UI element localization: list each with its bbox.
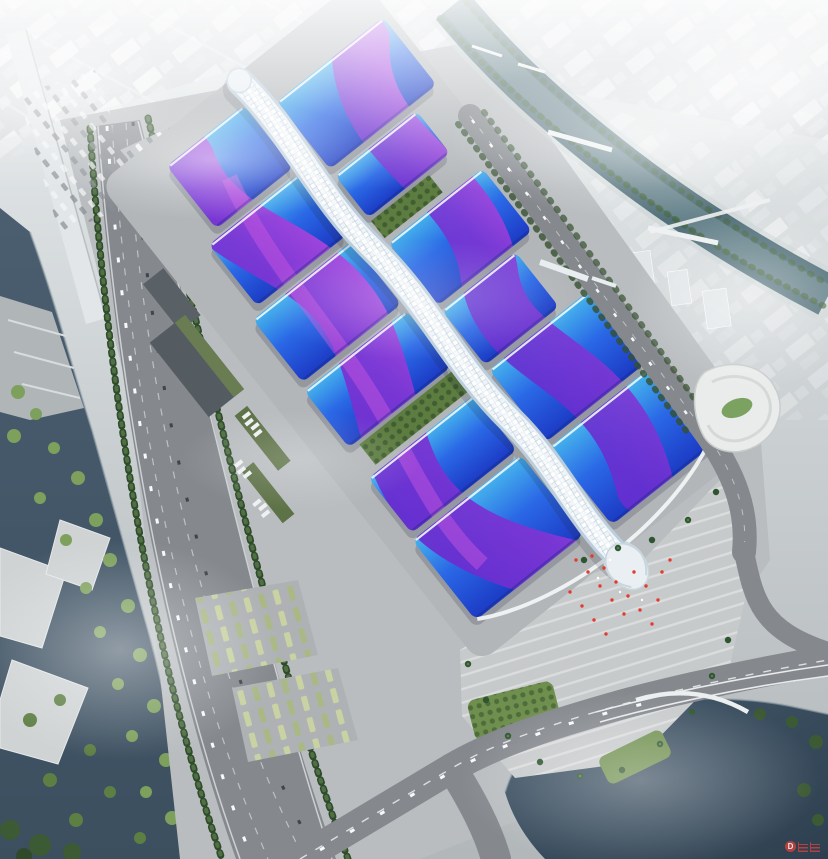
watermark-glyphs [798,842,808,852]
watermark: D [785,841,820,852]
watermark-glyphs [810,842,820,852]
rendered-scene [0,0,828,859]
aerial-rendering-canvas: D [0,0,828,859]
watermark-logo-icon: D [785,841,796,852]
